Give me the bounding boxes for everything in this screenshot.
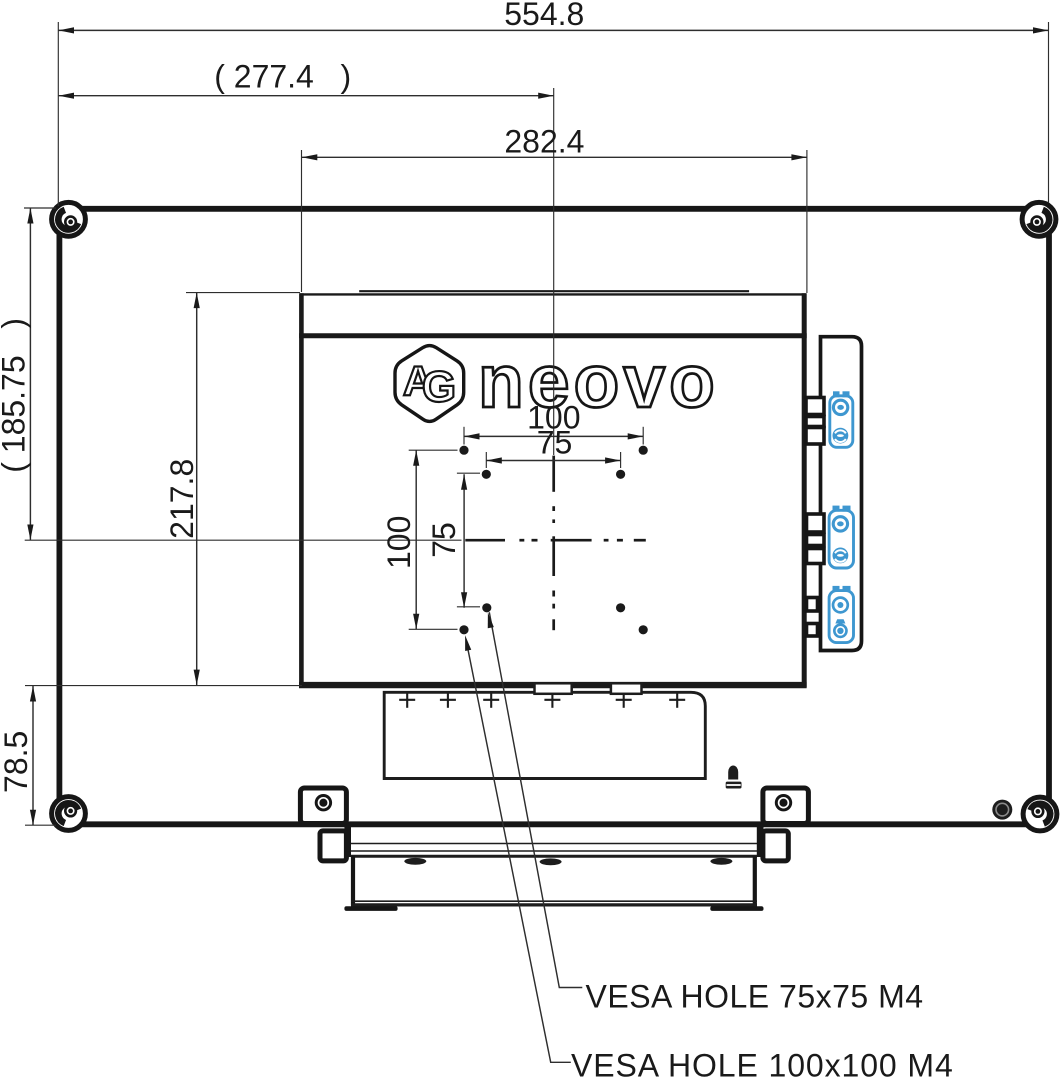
svg-text:VESA HOLE 75x75 M4: VESA HOLE 75x75 M4 [586,979,924,1015]
svg-text:75: 75 [426,522,462,558]
svg-text:75: 75 [537,425,573,461]
svg-text:VESA HOLE 100x100 M4: VESA HOLE 100x100 M4 [571,1048,954,1080]
svg-text:554.8: 554.8 [504,0,584,32]
svg-text:217.8: 217.8 [164,459,200,539]
svg-text:282.4: 282.4 [504,124,584,160]
svg-text:neovo: neovo [478,339,719,423]
svg-text:G: G [422,363,456,412]
svg-text:78.5: 78.5 [0,731,34,793]
svg-text:( 185.75 ): ( 185.75 ) [0,318,32,473]
svg-text:( 277.4 ): ( 277.4 ) [214,59,351,95]
svg-text:100: 100 [381,516,417,569]
